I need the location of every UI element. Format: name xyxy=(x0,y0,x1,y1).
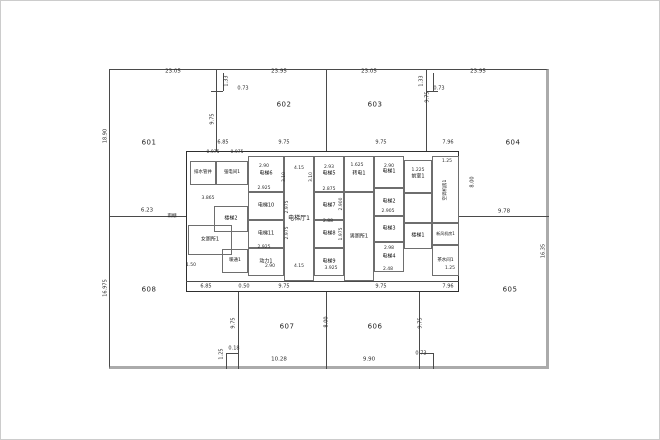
dimension-label: 1.25 xyxy=(442,160,452,165)
room: 楼梯1 xyxy=(404,223,432,249)
dimension-label: 3.925 xyxy=(325,267,338,272)
dimension-label: 9.78 xyxy=(498,209,510,215)
dimension-label: 2.93 xyxy=(324,166,334,171)
zone-divider-line xyxy=(419,292,420,369)
dimension-label: 23.95 xyxy=(470,69,486,75)
dimension-label: 2.900 xyxy=(340,198,345,211)
dimension-label: 9.75 xyxy=(211,113,216,124)
dimension-label: 9.75 xyxy=(278,285,289,290)
room: 前室1 xyxy=(404,160,432,193)
dimension-label: 1.33 xyxy=(225,75,230,86)
floor-plan-canvas: 排水管井强电间1楼梯2女厕所1暖通1电梯6电梯10电梯11动力1电梯厅1电梯5电… xyxy=(0,0,660,440)
dimension-label: 1.50 xyxy=(186,264,196,269)
dimension-label: 2.925 xyxy=(258,246,271,251)
dimension-label: 9.75 xyxy=(419,317,424,328)
room-label: 空调机房1 xyxy=(443,179,448,200)
room: 电梯3 xyxy=(374,216,404,242)
zone-divider-line xyxy=(459,216,549,217)
dimension-label: 0.975 xyxy=(231,151,244,156)
dimension-label: 3.865 xyxy=(202,197,215,202)
dimension-label: 0.50 xyxy=(238,285,249,290)
dimension-label: 6.85 xyxy=(217,141,228,146)
dimension-label: 2.975 xyxy=(286,227,291,240)
dimension-label: 7.96 xyxy=(442,285,453,290)
room: 强电间1 xyxy=(216,161,248,185)
room: 动力1 xyxy=(248,248,284,276)
zone-divider-line xyxy=(238,292,239,369)
dimension-label: 9.90 xyxy=(363,357,375,363)
room-label: 电梯3 xyxy=(382,227,395,232)
dimension-label: 9.75 xyxy=(375,141,386,146)
room: 电梯10 xyxy=(248,192,284,220)
room-label: 电梯9 xyxy=(322,260,335,265)
dimension-label: 9.75 xyxy=(278,141,289,146)
room xyxy=(404,193,432,223)
room-label: 电梯4 xyxy=(382,255,395,260)
dimension-label: 1.33 xyxy=(420,75,425,86)
room-label: 前室1 xyxy=(411,174,424,179)
room-label: 电梯2 xyxy=(382,200,395,205)
dimension-label: 2.90 xyxy=(259,165,269,170)
step-line xyxy=(226,353,227,369)
dimension-label: 1.225 xyxy=(412,169,425,174)
room-label: 暖通1 xyxy=(229,259,241,264)
zone-label: 603 xyxy=(368,102,383,109)
room-label: 新风机房1 xyxy=(436,232,455,236)
dimension-label: 7.96 xyxy=(442,141,453,146)
room-label: 电梯8 xyxy=(322,232,335,237)
room: 电梯9 xyxy=(314,248,344,276)
dimension-label: 4.15 xyxy=(294,265,304,270)
dimension-label: 2.98 xyxy=(384,247,394,252)
dimension-label: 0.18 xyxy=(228,347,239,352)
step-line xyxy=(226,353,238,354)
dimension-label: 1.25 xyxy=(445,267,455,272)
dimension-label: 1.975 xyxy=(340,228,345,241)
zone-label: 605 xyxy=(503,287,518,294)
room-label: 电梯厅1 xyxy=(288,216,310,222)
room: 男厕所1 xyxy=(344,192,374,281)
annotation-label: 雨棚 xyxy=(168,215,177,220)
dimension-label: 2.90 xyxy=(265,265,275,270)
room-label: 排水管井 xyxy=(194,171,212,176)
dimension-label: 1.25 xyxy=(220,348,225,359)
dimension-label: 9.75 xyxy=(375,285,386,290)
zone-divider-line xyxy=(326,292,327,369)
dimension-label: 4.15 xyxy=(294,167,304,172)
room: 排水管井 xyxy=(190,161,216,185)
dimension-label: 8.00 xyxy=(471,176,476,187)
dimension-label: 0.975 xyxy=(207,151,220,156)
dimension-label: 9.75 xyxy=(426,91,431,102)
room-label: 楼梯2 xyxy=(224,217,237,222)
dimension-label: 16.975 xyxy=(104,279,109,297)
dimension-label: 1.625 xyxy=(351,164,364,169)
room-label: 电梯10 xyxy=(258,204,274,209)
zone-label: 608 xyxy=(142,287,157,294)
dimension-label: 2.90 xyxy=(384,165,394,170)
dimension-label: 0.73 xyxy=(433,87,444,92)
dimension-label: 10.28 xyxy=(271,357,287,363)
room-label: 电梯6 xyxy=(259,172,272,177)
zone-divider-line xyxy=(426,69,427,151)
dimension-label: 2.875 xyxy=(323,188,336,193)
dimension-label: 23.05 xyxy=(165,69,181,75)
room-label: 楼梯1 xyxy=(411,234,424,239)
dimension-label: 2.975 xyxy=(286,201,291,214)
dimension-label: 2.925 xyxy=(258,187,271,192)
dimension-label: 3.10 xyxy=(283,172,288,182)
dimension-label: 16.35 xyxy=(542,244,547,258)
dimension-label: 8.00 xyxy=(325,316,330,327)
zone-label: 602 xyxy=(277,102,292,109)
room-label: 强电间1 xyxy=(224,171,240,176)
core-inner-line xyxy=(186,281,459,282)
zone-divider-line xyxy=(326,69,327,151)
zone-label: 607 xyxy=(280,324,295,331)
room-label: 电梯1 xyxy=(382,170,395,175)
dimension-label: 18.90 xyxy=(104,129,109,143)
dimension-label: 2.905 xyxy=(382,210,395,215)
room: 转电1 xyxy=(344,156,374,192)
room-label: 电梯11 xyxy=(258,232,274,237)
step-line xyxy=(433,353,434,369)
dimension-label: 23.95 xyxy=(271,69,287,75)
room-label: 转电1 xyxy=(352,172,365,177)
room: 电梯1 xyxy=(374,156,404,188)
room-label: 男厕所1 xyxy=(350,234,368,239)
dimension-label: 0.73 xyxy=(237,87,248,92)
step-line xyxy=(211,91,223,92)
room-label: 电梯7 xyxy=(322,204,335,209)
dimension-label: 0.73 xyxy=(415,352,426,357)
room: 新风机房1 xyxy=(432,223,459,245)
zone-label: 601 xyxy=(142,140,157,147)
room: 暖通1 xyxy=(222,249,248,273)
room-label: 电梯5 xyxy=(322,172,335,177)
zone-label: 606 xyxy=(368,324,383,331)
dimension-label: 9.75 xyxy=(232,317,237,328)
dimension-label: 6.85 xyxy=(200,285,211,290)
room-label: 女厕所1 xyxy=(201,238,219,243)
zone-label: 604 xyxy=(506,140,521,147)
room-label: 茶水间1 xyxy=(437,258,453,263)
dimension-label: 2.48 xyxy=(383,268,393,273)
room: 茶水间1 xyxy=(432,245,459,276)
dimension-label: 6.23 xyxy=(141,208,153,214)
dimension-label: 23.05 xyxy=(361,69,377,75)
dimension-label: 2.88 xyxy=(323,220,333,225)
room: 空调机房1 xyxy=(432,156,459,223)
dimension-label: 3.10 xyxy=(310,172,315,182)
